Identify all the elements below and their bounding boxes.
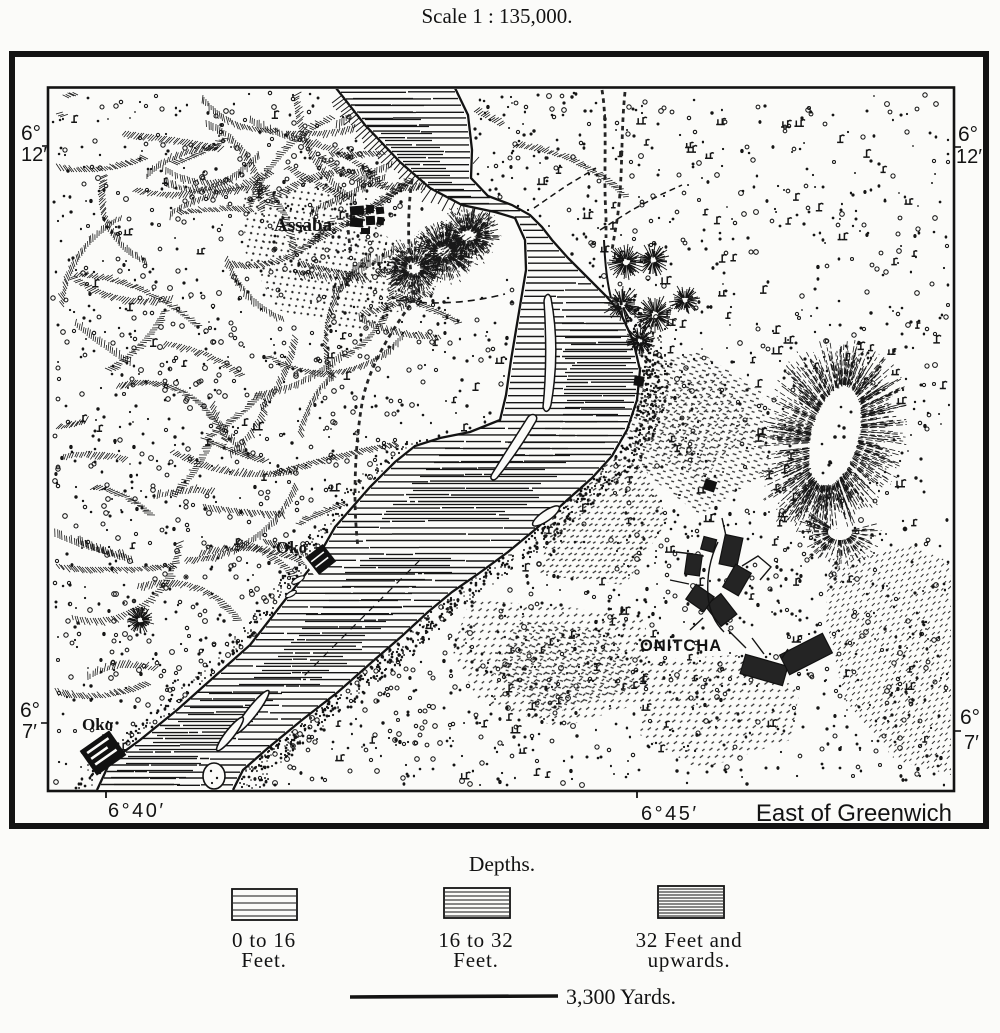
svg-text:Feet.: Feet.	[453, 948, 498, 972]
svg-text:6°: 6°	[20, 699, 40, 722]
svg-text:ONITCHA: ONITCHA	[640, 637, 722, 655]
svg-text:6°40′: 6°40′	[108, 800, 166, 822]
svg-text:Assaba: Assaba	[274, 215, 333, 236]
svg-text:Oko: Oko	[82, 715, 113, 734]
svg-text:Depths.: Depths.	[469, 852, 535, 876]
svg-text:3,300 Yards.: 3,300 Yards.	[566, 984, 676, 1009]
svg-text:Scale 1 : 135,000.: Scale 1 : 135,000.	[421, 4, 572, 28]
svg-text:12′: 12′	[956, 146, 982, 168]
svg-text:6°45′: 6°45′	[641, 803, 699, 825]
svg-text:12′: 12′	[21, 144, 47, 166]
svg-text:6°: 6°	[960, 706, 980, 729]
svg-text:7′: 7′	[22, 721, 37, 743]
svg-text:7′: 7′	[964, 732, 979, 754]
svg-text:Oko: Oko	[276, 538, 307, 557]
svg-text:East of Greenwich: East of Greenwich	[756, 800, 952, 827]
svg-text:6°: 6°	[21, 122, 41, 145]
svg-text:6°: 6°	[958, 123, 978, 146]
svg-text:Feet.: Feet.	[241, 948, 286, 972]
svg-text:upwards.: upwards.	[648, 948, 731, 972]
